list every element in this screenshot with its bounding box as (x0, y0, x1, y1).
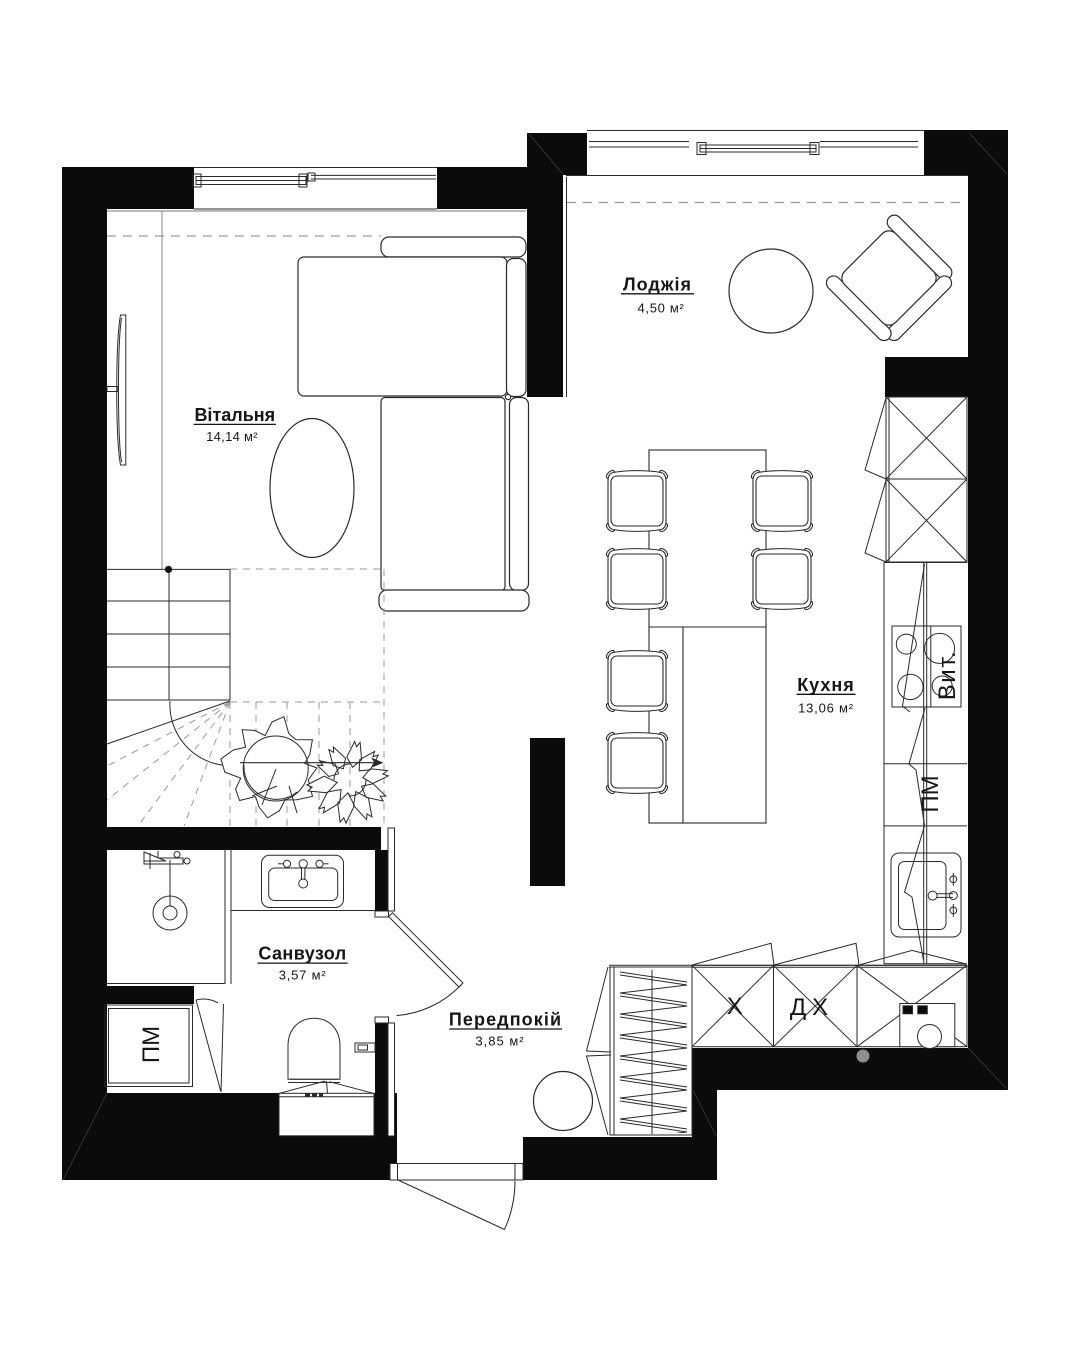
svg-text:Вітальня: Вітальня (194, 405, 275, 425)
svg-text:4,50 м²: 4,50 м² (637, 301, 684, 316)
svg-text:14,14 м²: 14,14 м² (206, 429, 258, 444)
svg-text:3,85 м²: 3,85 м² (475, 1034, 524, 1049)
svg-text:Кухня: Кухня (797, 675, 855, 695)
svg-text:ПМ: ПМ (138, 1026, 165, 1063)
svg-text:ДХ: ДХ (790, 994, 834, 1021)
svg-text:13,06 м²: 13,06 м² (798, 701, 854, 716)
svg-text:Санвузол: Санвузол (258, 944, 346, 964)
svg-text:Лоджія: Лоджія (623, 274, 692, 294)
svg-text:ПМ: ПМ (917, 775, 944, 812)
svg-text:Передпокій: Передпокій (449, 1010, 562, 1030)
svg-text:X: X (727, 993, 743, 1020)
svg-text:Вит.: Вит. (934, 650, 961, 700)
svg-text:3,57 м²: 3,57 м² (279, 968, 327, 983)
